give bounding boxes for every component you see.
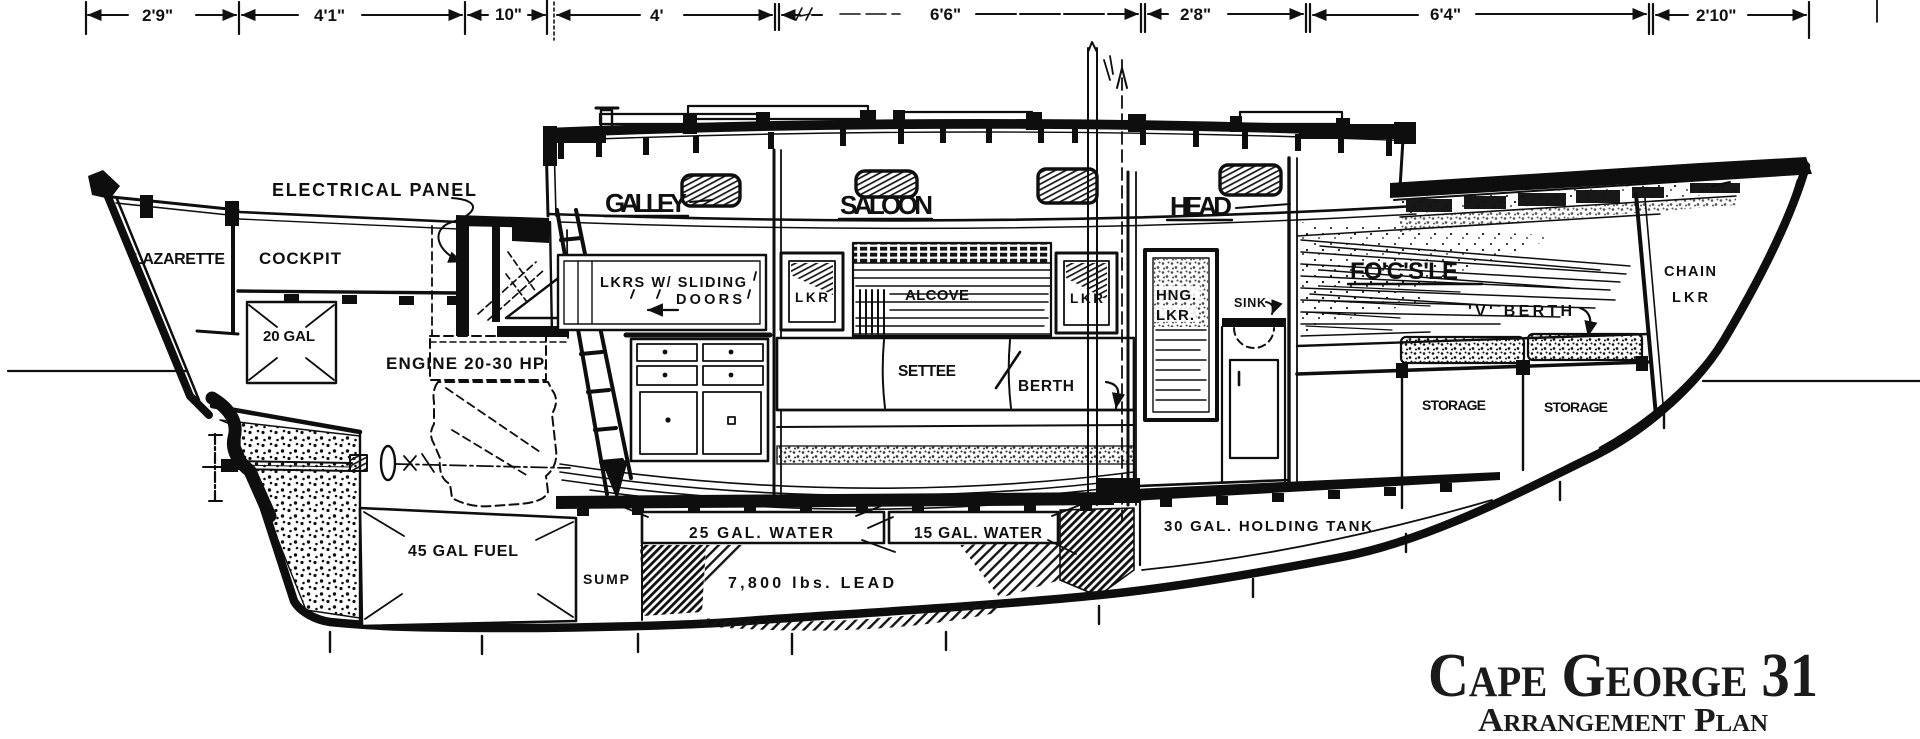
svg-text:ENGINE 20-30 HP.: ENGINE 20-30 HP. [386, 354, 548, 373]
svg-text:ALCOVE: ALCOVE [905, 287, 969, 304]
svg-text:LKRS W/ SLIDING: LKRS W/ SLIDING [600, 275, 746, 291]
svg-text:LKR.: LKR. [1156, 307, 1194, 324]
svg-text:HNG.: HNG. [1156, 287, 1196, 304]
svg-text:LKR: LKR [1672, 290, 1709, 306]
svg-text:2'10": 2'10" [1696, 6, 1736, 25]
svg-text:15 GAL. WATER: 15 GAL. WATER [914, 525, 1042, 542]
svg-text:SUMP: SUMP [583, 571, 629, 587]
svg-text:STORAGE: STORAGE [1544, 399, 1608, 415]
svg-text:COCKPIT: COCKPIT [259, 249, 342, 268]
svg-text:Cape George 31: Cape George 31 [1428, 642, 1818, 710]
svg-text:4': 4' [650, 6, 664, 25]
svg-text:6'4": 6'4" [1430, 5, 1461, 24]
svg-text:4'1": 4'1" [314, 6, 345, 25]
svg-text:STORAGE: STORAGE [1422, 397, 1486, 413]
svg-text:LKR: LKR [1070, 291, 1103, 306]
svg-text:BERTH: BERTH [1018, 378, 1074, 395]
svg-text:ELECTRICAL PANEL: ELECTRICAL PANEL [272, 180, 476, 200]
svg-text:LKR: LKR [795, 290, 828, 305]
svg-text:20 GAL: 20 GAL [263, 328, 315, 345]
svg-text:10": 10" [495, 5, 522, 24]
svg-text:HEAD: HEAD [1170, 191, 1232, 221]
svg-text:'V' BERTH: 'V' BERTH [1468, 303, 1572, 320]
svg-text:7,800 lbs. LEAD: 7,800 lbs. LEAD [728, 575, 894, 592]
svg-text:FO'C'S'LE: FO'C'S'LE [1350, 258, 1458, 285]
svg-text:SINK: SINK [1234, 296, 1266, 310]
svg-text:2'8": 2'8" [1180, 5, 1211, 24]
svg-text:30 GAL. HOLDING TANK: 30 GAL. HOLDING TANK [1164, 518, 1372, 535]
svg-text:DOORS: DOORS [676, 292, 742, 308]
svg-text:GALLEY: GALLEY [605, 188, 687, 218]
svg-text:6'6": 6'6" [930, 5, 961, 24]
svg-text:LAZARETTE: LAZARETTE [133, 251, 225, 268]
svg-text:Arrangement Plan: Arrangement Plan [1478, 702, 1769, 739]
svg-text:SALOON: SALOON [840, 190, 933, 220]
svg-text:45 GAL FUEL: 45 GAL FUEL [408, 543, 518, 560]
svg-text:2'9": 2'9" [142, 6, 173, 25]
svg-text:CHAIN: CHAIN [1664, 264, 1716, 280]
svg-text:SETTEE: SETTEE [898, 363, 956, 380]
